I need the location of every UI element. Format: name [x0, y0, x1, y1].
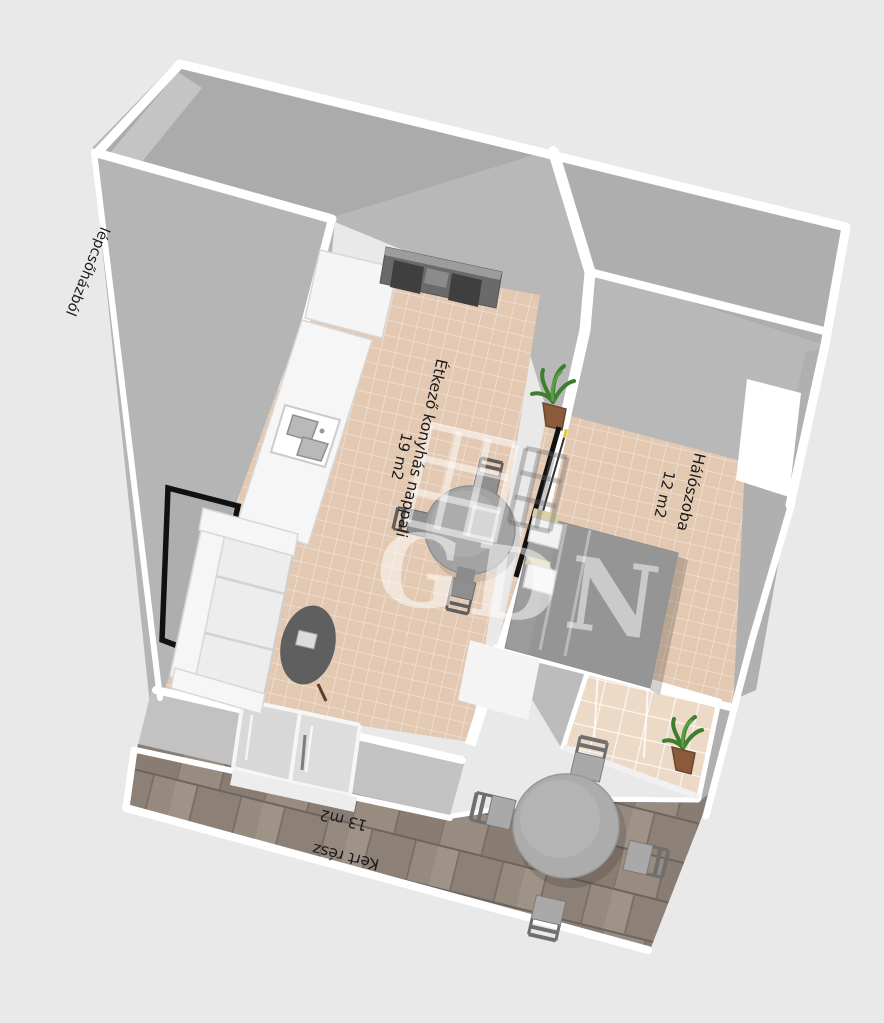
- floorplan-3d-view: GDN lépcsőházból Étkező konyhás nappali …: [0, 0, 884, 1023]
- floorplan-screenshot: GDN lépcsőházból Étkező konyhás nappali …: [0, 0, 884, 1023]
